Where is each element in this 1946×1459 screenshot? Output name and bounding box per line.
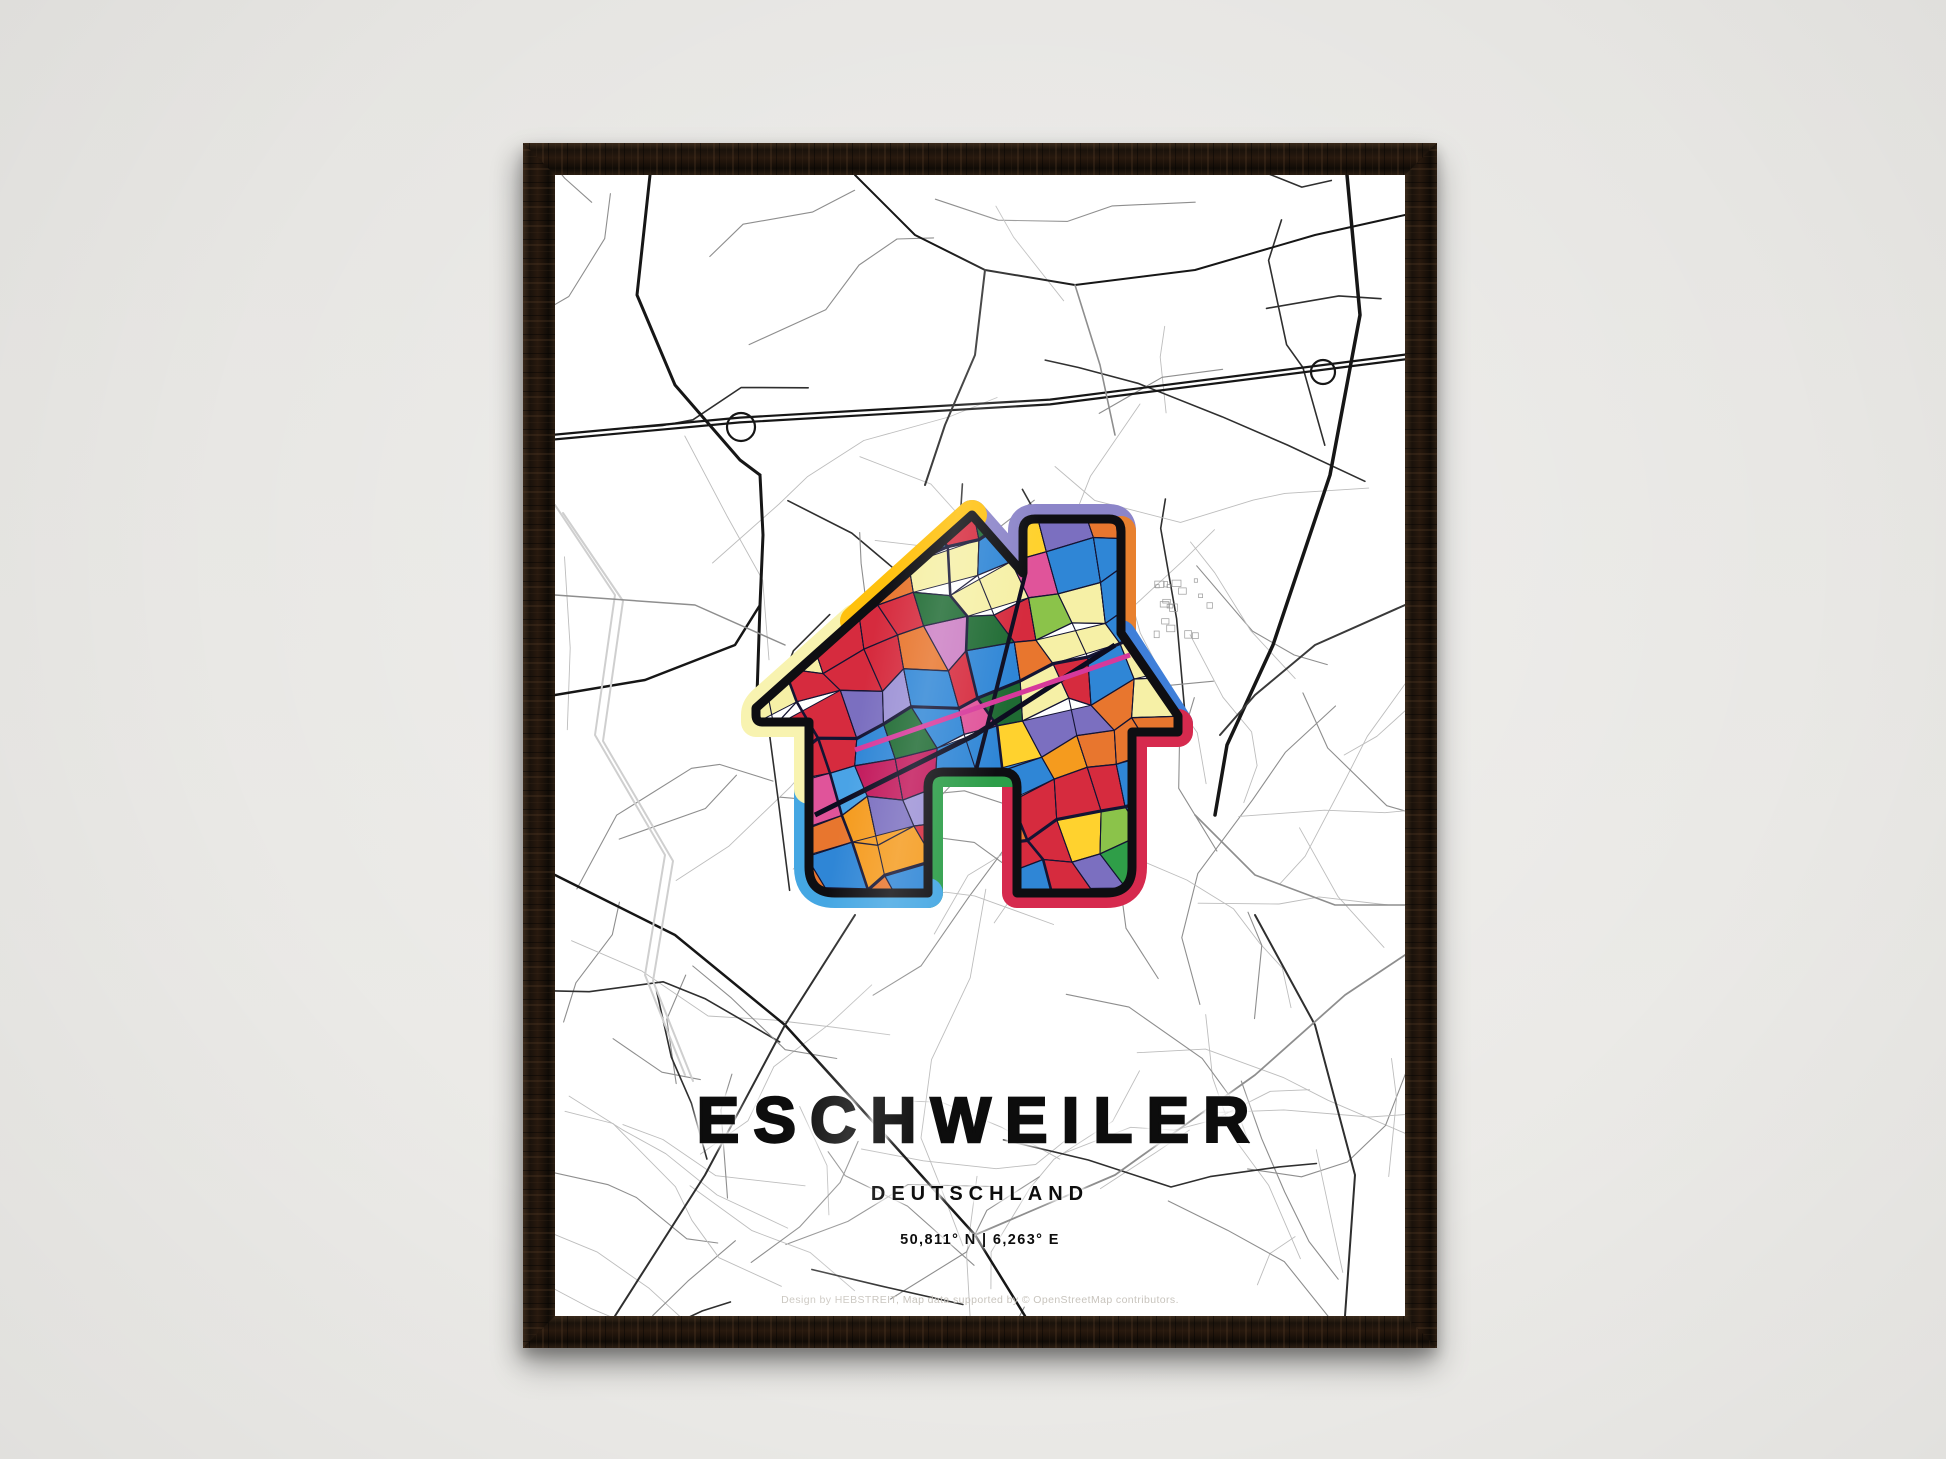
frame-bottom-moulding	[523, 1316, 1437, 1348]
picture-frame: ESCHWEILER DEUTSCHLAND 50,811° N | 6,263…	[523, 143, 1437, 1348]
frame-left-moulding	[523, 143, 555, 1348]
poster-paper: ESCHWEILER DEUTSCHLAND 50,811° N | 6,263…	[555, 175, 1405, 1316]
poster-title: ESCHWEILER	[555, 1083, 1405, 1157]
poster-coordinates: 50,811° N | 6,263° E	[555, 1232, 1405, 1248]
frame-top-moulding	[523, 143, 1437, 175]
poster-credit: Design by HEBSTREIT, Map data supported …	[555, 1294, 1405, 1306]
poster-subtitle: DEUTSCHLAND	[555, 1183, 1405, 1206]
frame-right-moulding	[1405, 143, 1437, 1348]
photo-of-framed-map-poster: { "scene": { "wall_color_top": "#e6e5e2"…	[0, 0, 1946, 1459]
